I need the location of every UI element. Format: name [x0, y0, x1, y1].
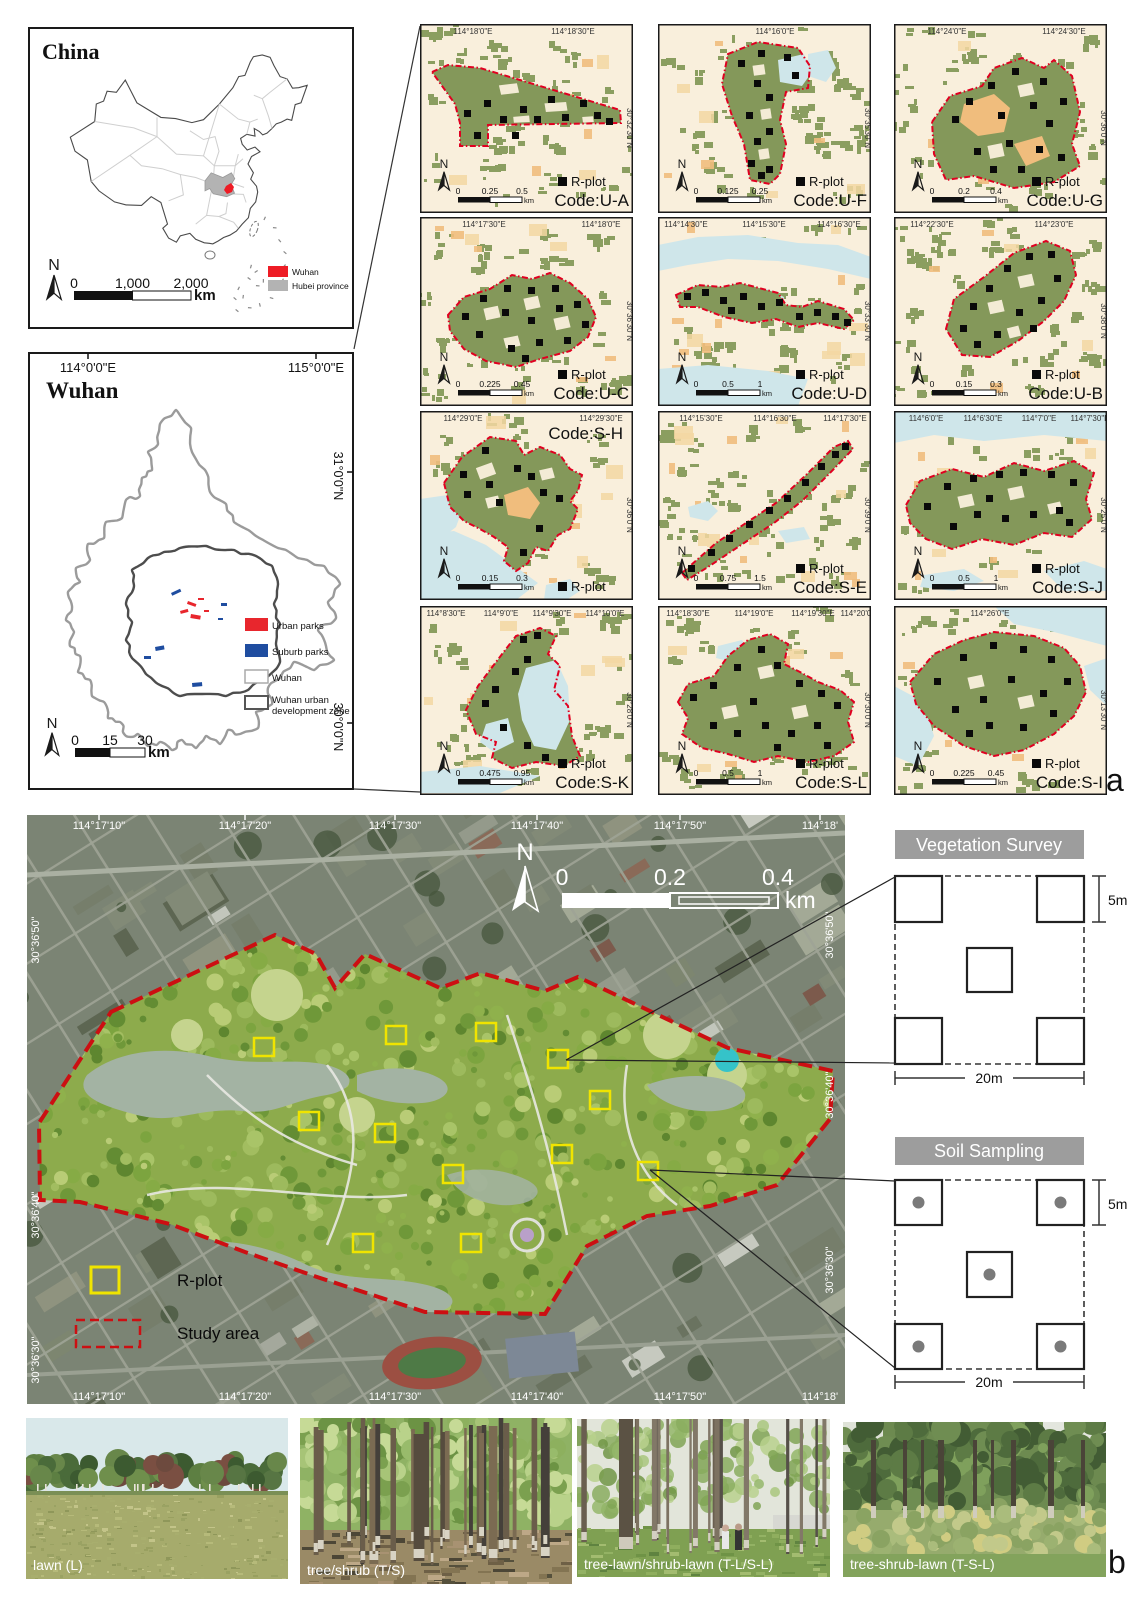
svg-text:Vegetation Survey: Vegetation Survey [916, 835, 1062, 855]
svg-text:tree-shrub-lawn (T-S-L): tree-shrub-lawn (T-S-L) [850, 1556, 995, 1572]
svg-text:0: 0 [694, 573, 699, 583]
svg-text:R-plot: R-plot [809, 174, 844, 189]
svg-text:R-plot: R-plot [571, 756, 606, 771]
svg-text:N: N [440, 544, 449, 558]
svg-text:0.25: 0.25 [752, 186, 769, 196]
svg-text:0.225: 0.225 [953, 768, 975, 778]
svg-text:N: N [516, 839, 533, 866]
svg-text:114°17'10": 114°17'10" [73, 1391, 126, 1403]
svg-text:km: km [524, 389, 534, 398]
svg-text:30°36'30": 30°36'30" [30, 1336, 42, 1383]
svg-text:Code:U-C: Code:U-C [553, 384, 629, 403]
svg-text:N: N [678, 544, 687, 558]
svg-text:0: 0 [930, 573, 935, 583]
svg-text:km: km [998, 389, 1008, 398]
svg-text:114°23'0"E: 114°23'0"E [1034, 220, 1073, 229]
svg-text:114°14'30"E: 114°14'30"E [664, 220, 707, 229]
svg-text:114°20'0"E: 114°20'0"E [840, 609, 871, 618]
svg-text:km: km [998, 583, 1008, 592]
svg-text:114°15'30"E: 114°15'30"E [742, 220, 785, 229]
svg-text:30°36'40": 30°36'40" [30, 1191, 42, 1238]
svg-text:114°17'50": 114°17'50" [654, 1391, 707, 1403]
svg-text:tree-lawn/shrub-lawn (T-L/S-L): tree-lawn/shrub-lawn (T-L/S-L) [584, 1556, 773, 1572]
svg-text:tree/shrub (T/S): tree/shrub (T/S) [307, 1562, 405, 1578]
svg-text:0.2: 0.2 [958, 186, 970, 196]
svg-text:Code:S-H: Code:S-H [548, 424, 623, 443]
svg-text:N: N [914, 350, 923, 364]
svg-text:N: N [914, 157, 923, 171]
svg-text:Code:S-I: Code:S-I [1036, 773, 1103, 792]
svg-text:R-plot: R-plot [1045, 367, 1080, 382]
svg-text:1: 1 [758, 768, 763, 778]
svg-text:114°16'30"E: 114°16'30"E [753, 414, 796, 423]
svg-text:R-plot: R-plot [1045, 756, 1080, 771]
svg-text:0: 0 [456, 379, 461, 389]
svg-text:Soil Sampling: Soil Sampling [934, 1141, 1044, 1161]
svg-text:0.4: 0.4 [990, 186, 1002, 196]
svg-text:114°18'30"E: 114°18'30"E [666, 609, 709, 618]
svg-text:114°16'30"E: 114°16'30"E [817, 220, 860, 229]
svg-text:0.25: 0.25 [482, 186, 499, 196]
svg-text:km: km [762, 583, 772, 592]
svg-text:km: km [524, 196, 534, 205]
svg-text:km: km [762, 778, 772, 787]
svg-text:Code:U-A: Code:U-A [554, 191, 629, 210]
svg-text:Code:S-K: Code:S-K [555, 773, 629, 792]
svg-text:0.2: 0.2 [654, 864, 686, 890]
svg-text:R-plot: R-plot [1045, 561, 1080, 576]
svg-text:114°7'30"E: 114°7'30"E [1070, 414, 1107, 423]
svg-text:Code:S-E: Code:S-E [793, 578, 867, 597]
svg-text:km: km [762, 389, 772, 398]
svg-text:Code:S-J: Code:S-J [1032, 578, 1103, 597]
svg-text:114°18': 114°18' [802, 1391, 838, 1403]
svg-text:R-plot: R-plot [809, 756, 844, 771]
svg-text:R-plot: R-plot [177, 1271, 223, 1290]
svg-text:Study area: Study area [177, 1324, 260, 1343]
svg-text:114°26'0"E: 114°26'0"E [970, 609, 1009, 618]
svg-text:114°24'30"E: 114°24'30"E [1042, 27, 1085, 36]
svg-text:0.475: 0.475 [479, 768, 501, 778]
svg-text:114°16'0"E: 114°16'0"E [755, 27, 794, 36]
svg-text:114°18'30"E: 114°18'30"E [551, 27, 594, 36]
svg-text:114°17'30"E: 114°17'30"E [462, 220, 505, 229]
svg-text:N: N [440, 350, 449, 364]
svg-text:N: N [678, 157, 687, 171]
svg-text:N: N [440, 157, 449, 171]
svg-text:0.95: 0.95 [514, 768, 531, 778]
svg-text:114°9'0"E: 114°9'0"E [484, 609, 519, 618]
svg-text:5m: 5m [1108, 892, 1127, 908]
svg-text:114°18': 114°18' [802, 820, 838, 832]
svg-text:0.5: 0.5 [958, 573, 970, 583]
svg-text:Code:U-B: Code:U-B [1028, 384, 1103, 403]
svg-text:114°6'0"E: 114°6'0"E [909, 414, 944, 423]
svg-text:30°36'50": 30°36'50" [30, 916, 42, 963]
svg-text:114°19'0"E: 114°19'0"E [734, 609, 773, 618]
svg-text:R-plot: R-plot [571, 367, 606, 382]
svg-text:0: 0 [930, 186, 935, 196]
svg-text:1: 1 [994, 573, 999, 583]
svg-text:114°17'30"E: 114°17'30"E [823, 414, 866, 423]
svg-text:Code:U-G: Code:U-G [1026, 191, 1103, 210]
svg-text:114°17'30": 114°17'30" [369, 820, 422, 832]
svg-text:114°18'0"E: 114°18'0"E [581, 220, 620, 229]
svg-text:114°29'0"E: 114°29'0"E [443, 414, 482, 423]
svg-text:0: 0 [930, 768, 935, 778]
svg-text:Code:S-L: Code:S-L [795, 773, 867, 792]
svg-text:lawn (L): lawn (L) [33, 1557, 83, 1573]
svg-text:km: km [785, 887, 816, 913]
svg-text:0.3: 0.3 [516, 573, 528, 583]
svg-text:0: 0 [694, 768, 699, 778]
svg-text:114°17'30": 114°17'30" [369, 1391, 422, 1403]
svg-text:30°36'50": 30°36'50" [824, 911, 836, 958]
svg-text:114°18'0"E: 114°18'0"E [453, 27, 492, 36]
svg-text:R-plot: R-plot [809, 367, 844, 382]
svg-text:0.15: 0.15 [482, 573, 499, 583]
svg-text:114°10'0"E: 114°10'0"E [585, 609, 624, 618]
svg-text:0.45: 0.45 [514, 379, 531, 389]
svg-text:114°17'20": 114°17'20" [219, 1391, 272, 1403]
svg-text:114°22'30"E: 114°22'30"E [910, 220, 953, 229]
svg-text:R-plot: R-plot [1045, 174, 1080, 189]
svg-text:0: 0 [694, 379, 699, 389]
svg-text:km: km [524, 778, 534, 787]
svg-text:30°36'30": 30°36'30" [824, 1246, 836, 1293]
svg-text:0: 0 [930, 379, 935, 389]
svg-text:0.5: 0.5 [516, 186, 528, 196]
svg-text:R-plot: R-plot [571, 579, 606, 594]
svg-text:0: 0 [456, 186, 461, 196]
svg-text:km: km [762, 196, 772, 205]
svg-text:N: N [914, 544, 923, 558]
svg-text:114°17'20": 114°17'20" [219, 820, 272, 832]
svg-text:114°19'30"E: 114°19'30"E [791, 609, 834, 618]
svg-text:R-plot: R-plot [571, 174, 606, 189]
svg-text:0: 0 [694, 186, 699, 196]
svg-text:0.45: 0.45 [988, 768, 1005, 778]
svg-text:114°17'10": 114°17'10" [73, 820, 126, 832]
svg-text:R-plot: R-plot [809, 561, 844, 576]
svg-text:114°29'30"E: 114°29'30"E [579, 414, 622, 423]
svg-text:0: 0 [456, 573, 461, 583]
svg-text:114°6'30"E: 114°6'30"E [963, 414, 1002, 423]
svg-text:0.3: 0.3 [990, 379, 1002, 389]
svg-text:N: N [678, 739, 687, 753]
svg-text:5m: 5m [1108, 1196, 1127, 1212]
svg-text:20m: 20m [975, 1070, 1002, 1086]
svg-text:1.5: 1.5 [754, 573, 766, 583]
svg-text:114°17'40": 114°17'40" [511, 1391, 564, 1403]
svg-text:0.125: 0.125 [717, 186, 739, 196]
svg-text:1: 1 [758, 379, 763, 389]
svg-text:0.15: 0.15 [956, 379, 973, 389]
svg-text:114°15'30"E: 114°15'30"E [679, 414, 722, 423]
svg-text:N: N [914, 739, 923, 753]
svg-text:km: km [524, 583, 534, 592]
svg-text:N: N [678, 350, 687, 364]
svg-text:km: km [998, 778, 1008, 787]
svg-text:0: 0 [556, 864, 569, 890]
svg-text:30°36'40": 30°36'40" [824, 1071, 836, 1118]
svg-text:0: 0 [456, 768, 461, 778]
svg-text:0.225: 0.225 [479, 379, 501, 389]
svg-text:114°8'30"E: 114°8'30"E [426, 609, 465, 618]
svg-text:km: km [998, 196, 1008, 205]
svg-text:Code:U-F: Code:U-F [793, 191, 867, 210]
svg-text:0.5: 0.5 [722, 768, 734, 778]
svg-text:N: N [440, 739, 449, 753]
svg-text:114°24'0"E: 114°24'0"E [927, 27, 966, 36]
svg-text:114°17'50": 114°17'50" [654, 820, 707, 832]
svg-text:0.75: 0.75 [720, 573, 737, 583]
svg-text:114°9'30"E: 114°9'30"E [532, 609, 571, 618]
svg-text:Code:U-D: Code:U-D [791, 384, 867, 403]
svg-text:20m: 20m [975, 1374, 1002, 1390]
svg-text:114°17'40": 114°17'40" [511, 820, 564, 832]
svg-text:0.5: 0.5 [722, 379, 734, 389]
svg-text:114°7'0"E: 114°7'0"E [1022, 414, 1057, 423]
